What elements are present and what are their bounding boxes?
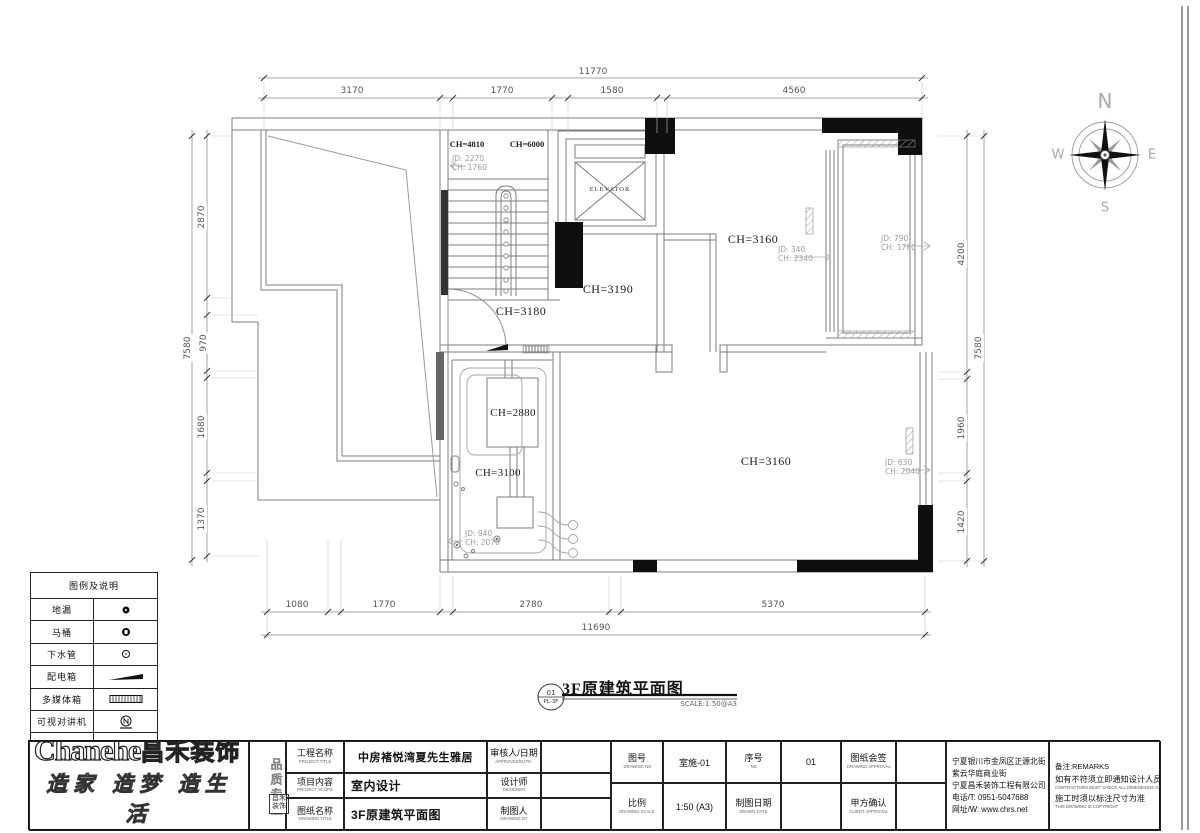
company-info: 宁夏银川市金凤区正源北街 紫云华庭商业街 宁夏昌禾装饰工程有限公司 电话/T: … [946,741,1049,831]
client-approval-label: 甲方确认 CLIENT APPROVAL [841,783,896,831]
company-logo: Chanehe昌禾装饰 造家 造梦 造生活 [29,741,249,831]
remarks-cell: 备注:REMARKS 如有不符须立即通知设计人员 CONTRACTORS MUS… [1049,741,1161,831]
dim-left-seg3: 1680 [197,414,207,441]
drawing-title-value: 3F原建筑平面图 [344,798,487,831]
designer-signature-cell [541,773,611,798]
drain-pipe-icon [103,647,149,661]
dim-bottom-seg4: 5370 [760,600,787,610]
dim-left-seg2: 970 [199,332,209,353]
dim-right-seg3: 1420 [957,509,967,536]
legend-row-toilet: 马桶 [31,621,157,643]
drawn-date-value [781,783,841,831]
designer-label: 设计师 DESIGNER [487,773,541,798]
sheet-border [1182,6,1188,830]
logo-latin: Chanehe [34,741,140,767]
drawn-by-label: 制图人 DRAWING BY [487,798,541,831]
elevator-label: ELEVATOR [590,186,631,193]
serial-no-value: 01 [781,741,841,783]
drawing-title-scale: SCALE:1:50@A3 [645,700,737,708]
dimension-ticks [189,75,987,638]
project-scope-label: 项目内容 PROJECT SCOPE [286,773,344,798]
dim-top-seg2: 1770 [489,86,516,96]
drawing-title-number: 01 [547,689,556,697]
title-block: Chanehe昌禾装饰 造家 造梦 造生活 品质专注 昌禾装饰 工程名称 PRO… [28,740,1160,830]
legend-row-video-intercom: 可视对讲机 [31,711,157,733]
legend-box: 图例及说明 地漏 马桶 下水管 配电箱 多媒体箱 可视对讲机 分水器 [30,572,158,755]
drawn-date-label: 制图日期 DRAWN DATE [726,783,781,831]
floor-drain-icon [103,603,149,617]
jd-annotation-stair: JD: 2270 CH: 1760 [452,154,487,172]
walls [232,118,933,572]
dim-top-seg3: 1580 [599,86,626,96]
vertical-tagline: 品质专注 [249,741,286,831]
room-label-ch2880: CH=2880 [490,407,536,419]
drawing-sheet: CH=4810 CH=6000 JD: 2270 CH: 1760 ELEVAT… [0,0,1200,833]
dim-top-overall: 11770 [577,67,610,77]
dim-bottom-seg3: 2780 [518,600,545,610]
scale-value: 1:50 (A3) [663,783,726,831]
serial-no-label: 序号 NO [726,741,781,783]
legend-row-distribution-box: 配电箱 [31,666,157,688]
compass-rose [1069,119,1141,191]
client-approval-value [896,783,946,831]
jd-annotation-630: JD: 630 CH: 2040 [885,458,920,476]
project-title-value: 中房褚悦湾夏先生雅居 [344,741,487,773]
logo-chinese: 昌禾装饰 [140,741,240,766]
project-scope-value: 室内设计 [344,773,487,798]
stair-balusters [504,194,508,293]
compass-west-label: W [1052,148,1065,163]
approved-value [541,741,611,773]
dim-bottom-overall: 11690 [580,623,613,633]
dim-left-overall: 7580 [183,335,193,362]
window-tag [906,428,913,454]
toilet-icon [103,625,149,639]
legend-row-floor-drain: 地漏 [31,599,157,621]
window-tag [806,208,813,234]
drawing-no-value: 室施-01 [663,741,726,783]
video-intercom-icon [103,714,149,730]
room-label-ch3190: CH=3190 [583,282,633,297]
compass-north-label: N [1098,89,1113,113]
jd-annotation-340: JD: 340 CH: 2340 [778,245,813,263]
dim-top-seg4: 4560 [781,86,808,96]
dim-bottom-seg1: 1080 [284,600,311,610]
drawing-no-label: 图号 DRAWING NO [611,741,663,783]
drawing-title-code: PL-3F [544,699,559,705]
multimedia-box-icon [103,692,149,706]
jd-annotation-790: JD: 790 CH: 1780 [881,234,916,252]
annotation-arrows [447,162,930,545]
approved-label: 审核人/日期 APPROVED/DATE: [487,741,541,773]
legend-row-drain-pipe: 下水管 [31,644,157,666]
compass-south-label: S [1101,201,1109,216]
room-label-ch4810: CH=4810 [450,139,485,149]
jd-annotation-940: JD: 940 CH: 2070 [465,529,500,547]
drawn-by-value [541,798,611,831]
dim-right-seg2: 1960 [957,415,967,442]
project-title-label: 工程名称 PROJECT TITLE [286,741,344,773]
drawing-approval-value [896,741,946,783]
drawing-title-text: 3F原建筑平面图 [562,675,684,699]
multimedia-box-mark [523,346,549,353]
room-label-ch3180: CH=3180 [496,304,546,319]
dim-top-seg1: 3170 [339,86,366,96]
legend-row-multimedia-box: 多媒体箱 [31,689,157,711]
dim-right-overall: 7580 [974,335,984,362]
legend-title: 图例及说明 [31,573,157,599]
drawing-title-label: 图纸名称 DRAWING TITLE [286,798,344,831]
room-label-ch6000: CH=6000 [510,139,545,149]
room-label-ch3160-bottom: CH=3160 [741,454,791,469]
dim-right-seg1: 4200 [957,241,967,268]
dim-bottom-seg2: 1770 [371,600,398,610]
remarks-title: 备注:REMARKS [1055,762,1109,772]
compass-east-label: E [1148,148,1156,163]
drawing-approval-label: 图纸会签 DRAWING APPROVAL [841,741,896,783]
scale-label: 比例 DRAWING SCALE [611,783,663,831]
room-label-ch3100: CH=3100 [475,467,521,479]
floor-plan-svg [0,0,1200,833]
distribution-box-icon [103,670,149,684]
hatch-bands [486,140,915,454]
logo-slogan: 造家 造梦 造生活 [34,768,244,828]
dim-left-seg1: 2870 [197,204,207,231]
room-label-ch3160-top: CH=3160 [728,232,778,247]
dim-left-seg4: 1370 [197,506,207,533]
